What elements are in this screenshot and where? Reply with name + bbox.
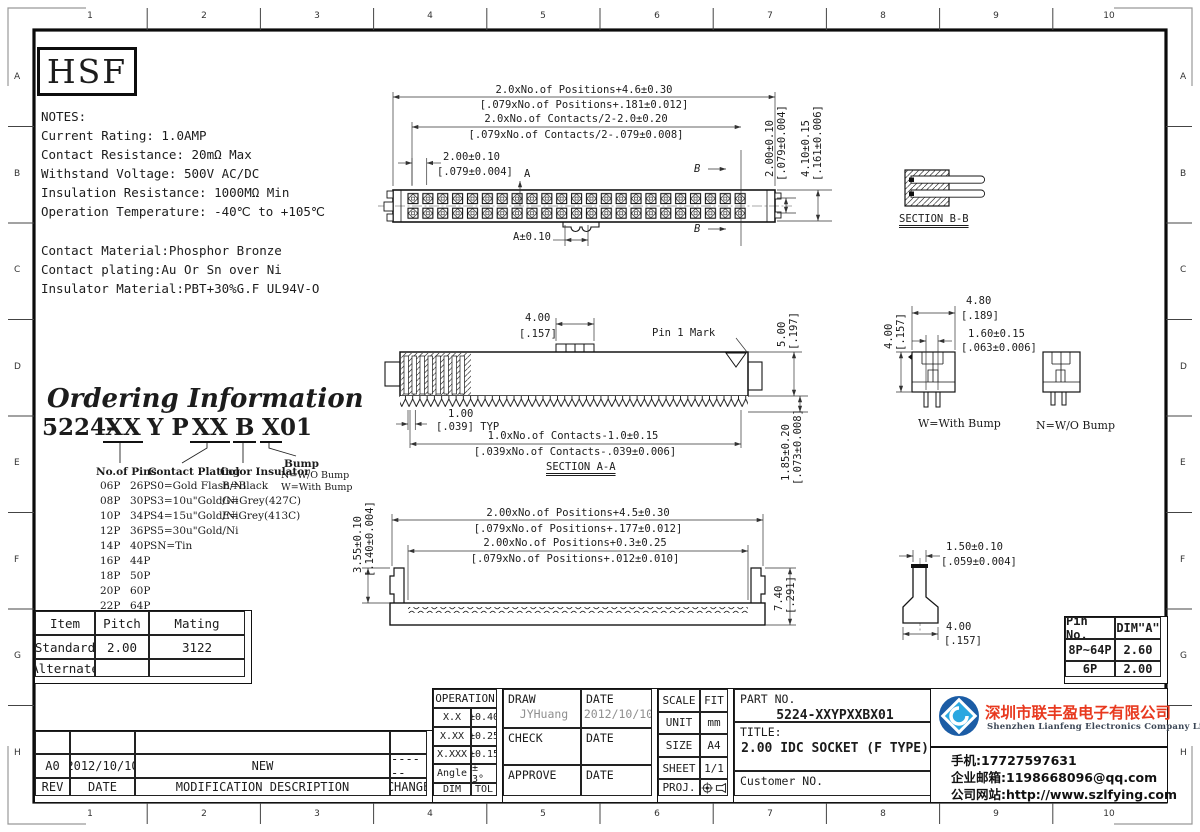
- dim-bottom-outer-in: [.079xNo.of Positions+.177±0.012]: [474, 523, 683, 536]
- ruler-col: 9: [993, 11, 999, 21]
- pin-table-cell: 6P: [1065, 661, 1115, 677]
- note-line: Contact plating:Au Or Sn over Ni: [41, 260, 282, 279]
- company-name-en: Shenzhen Lianfeng Electronics Company Li…: [987, 722, 1200, 732]
- pin-table-header: DIM"A": [1115, 617, 1161, 639]
- draw-date-value: 2012/10/10: [584, 706, 652, 721]
- pins-item: 14P: [100, 540, 120, 552]
- ruler-row: B: [1180, 169, 1186, 179]
- revision-table: A0 2012/10/10 NEW ------ REV DATE MODIFI…: [34, 730, 434, 803]
- dim-height-in: [.161±0.006]: [812, 105, 825, 181]
- tol-cell: X.XXX: [433, 746, 471, 765]
- dim-pin-top-mm: 1.50±0.10: [946, 541, 1003, 554]
- ruler-col: 5: [540, 11, 546, 21]
- ruler-col: 1: [87, 809, 93, 819]
- date-label: DATE: [586, 692, 614, 706]
- tol-cell: TOL: [471, 783, 497, 796]
- approval-block: DRAWJYHuang DATE2012/10/10 CHECK DATE AP…: [502, 688, 659, 803]
- info-block: SCALE FIT UNIT mm SIZE A4 SHEET 1/1 PROJ…: [657, 688, 735, 803]
- size-label: SIZE: [658, 734, 700, 757]
- ruler-col: 4: [427, 11, 433, 21]
- tolerance-table: OPERATION X.X ±0.40 X.XX ±0.25 X.XXX ±0.…: [432, 688, 504, 803]
- ruler-col: 3: [314, 11, 320, 21]
- pins-item: 18P: [100, 570, 120, 582]
- company-logo-icon: [937, 694, 983, 740]
- dim-aa-contacts-mm: 1.0xNo.of Contacts-1.0±0.15: [488, 430, 659, 443]
- hsf-logo-text: HSF: [47, 52, 127, 91]
- dim-pin-bottom-mm: 4.00: [946, 621, 971, 634]
- dim-pin-bottom-in: [.157]: [944, 635, 982, 648]
- proj-label: PROJ.: [658, 779, 700, 796]
- section-b-label-top: B: [694, 163, 700, 176]
- ruler-row: A: [1180, 72, 1186, 82]
- rev-cell: A0: [35, 754, 70, 778]
- check-label: CHECK: [508, 731, 543, 745]
- note-line: Withstand Voltage: 500V AC/DC: [41, 164, 259, 183]
- dim-bump-pin-in: [.063±0.006]: [961, 342, 1037, 355]
- rev-header: DATE: [70, 778, 135, 796]
- pins-item: 12P: [100, 525, 120, 537]
- ruler-col: 5: [540, 809, 546, 819]
- pins-item: 34P: [130, 510, 150, 522]
- mating-cell: 3122: [149, 635, 245, 659]
- ruler-col: 2: [201, 809, 207, 819]
- size-value: A4: [700, 734, 728, 757]
- note-line: Contact Resistance: 20mΩ Max: [41, 145, 252, 164]
- ordering-code-mid: Y P: [147, 414, 189, 441]
- dim-key-in: [.157]: [519, 328, 557, 341]
- draw-cell: DRAWJYHuang: [503, 689, 581, 728]
- dim-bump-height-mm: 4.00: [883, 324, 896, 349]
- dim-bottom-outer-mm: 2.00xNo.of Positions+4.5±0.30: [486, 507, 669, 520]
- ruler-row: F: [1180, 555, 1185, 565]
- mating-cell: 2.00: [95, 635, 149, 659]
- part-no-value: 5224-XXYPXXBX01: [776, 706, 893, 722]
- pin1-mark-label: Pin 1 Mark: [652, 327, 715, 340]
- dim-bottom-left-in: [.140±0.004]: [364, 501, 377, 577]
- ruler-col: 2: [201, 11, 207, 21]
- approve-date-cell: DATE: [581, 765, 652, 796]
- rev-header: REV: [35, 778, 70, 796]
- pin-table-cell: 8P~64P: [1065, 639, 1115, 661]
- tol-cell: DIM: [433, 783, 471, 796]
- rev-empty: [35, 731, 70, 754]
- ruler-row: C: [1180, 265, 1186, 275]
- ruler-row: E: [1180, 458, 1186, 468]
- pin-table-cell: 2.00: [1115, 661, 1161, 677]
- notes-heading: NOTES:: [41, 107, 86, 126]
- sheet-value: 1/1: [700, 757, 728, 780]
- ordering-title: Ordering Information: [47, 384, 364, 414]
- with-bump-label: W=With Bump: [918, 417, 1001, 430]
- dim-a-bottom: A±0.10: [513, 231, 551, 244]
- hsf-logo: HSF: [37, 47, 137, 96]
- section-aa-label: SECTION A-A: [546, 461, 616, 474]
- dim-positions-mm: 2.0xNo.of Positions+4.6±0.30: [495, 84, 672, 97]
- customer-label: Customer NO.: [740, 774, 823, 788]
- ordering-leader-lines: [120, 442, 296, 463]
- rev-empty: [135, 731, 390, 754]
- mating-header: Item: [35, 611, 95, 635]
- bump-item: W=With Bump: [281, 482, 353, 493]
- ordering-code-bump: X: [260, 414, 282, 443]
- pins-item: 36P: [130, 525, 150, 537]
- mating-cell: Alternate: [35, 659, 95, 677]
- dim-pitch-in: [.079±0.004]: [437, 166, 513, 179]
- rev-cell: 2012/10/10: [70, 754, 135, 778]
- mating-cell: Standard: [35, 635, 95, 659]
- color-item: E=Grey(413C): [222, 510, 300, 522]
- note-line: Current Rating: 1.0AMP: [41, 126, 207, 145]
- draw-label: DRAW: [508, 692, 536, 706]
- section-a-label-top: A: [524, 168, 530, 181]
- part-no-cell: PART NO.5224-XXYPXXBX01: [734, 689, 931, 722]
- ruler-row: G: [1180, 651, 1187, 661]
- rev-empty: [70, 731, 135, 754]
- ruler-col: 7: [767, 809, 773, 819]
- sheet-label: SHEET: [658, 757, 700, 780]
- unit-label: UNIT: [658, 712, 700, 735]
- rev-cell: NEW: [135, 754, 390, 778]
- pins-item: 16P: [100, 555, 120, 567]
- part-no-label: PART NO.: [740, 692, 795, 706]
- note-line: Insulator Material:PBT+30%G.F UL94V-O: [41, 279, 319, 298]
- dim-pitch-mm: 2.00±0.10: [443, 151, 500, 164]
- bump-item: N=W/O Bump: [281, 470, 349, 481]
- company-website: 公司网站:http://www.szlfying.com: [951, 784, 1177, 803]
- ruler-col: 7: [767, 11, 773, 21]
- mating-cell: [95, 659, 149, 677]
- mating-header: Pitch: [95, 611, 149, 635]
- tol-cell: ±0.40: [471, 708, 497, 727]
- dim-bump-height-in: [.157]: [895, 313, 908, 351]
- ruler-row: G: [14, 651, 21, 661]
- mating-cell: [149, 659, 245, 677]
- ruler-col: 9: [993, 809, 999, 819]
- ruler-row: C: [14, 265, 20, 275]
- dim-row-mm: 2.00±0.10: [764, 120, 777, 177]
- part-block: PART NO.5224-XXYPXXBX01 TITLE:2.00 IDC S…: [733, 688, 932, 803]
- ruler-col: 4: [427, 809, 433, 819]
- dim-contacts-in: [.079xNo.of Contacts/2-.079±0.008]: [469, 129, 684, 142]
- note-line: Contact Material:Phosphor Bronze: [41, 241, 282, 260]
- section-bb-label: SECTION B-B: [899, 213, 969, 226]
- tol-cell: X.X: [433, 708, 471, 727]
- dim-key-mm: 4.00: [525, 312, 550, 325]
- rev-header: MODIFICATION DESCRIPTION: [135, 778, 390, 796]
- date-label: DATE: [586, 731, 614, 745]
- pins-item: 60P: [130, 585, 150, 597]
- ordering-code-suffix: 01: [280, 414, 312, 441]
- date-label: DATE: [586, 768, 614, 782]
- color-item: B=Black: [222, 480, 268, 492]
- ruler-col: 3: [314, 809, 320, 819]
- check-date-cell: DATE: [581, 728, 652, 765]
- pins-item: 20P: [100, 585, 120, 597]
- note-line: Operation Temperature: -40℃ to +105℃: [41, 202, 325, 221]
- ruler-row: H: [14, 748, 21, 758]
- rev-header: CHANGE: [390, 778, 427, 796]
- ordering-code-plating: XX: [190, 414, 230, 443]
- customer-cell: Customer NO.: [734, 771, 931, 796]
- ruler-row: E: [14, 458, 20, 468]
- pin-table-cell: 2.60: [1115, 639, 1161, 661]
- draw-value: JYHuang: [520, 706, 568, 721]
- pin-detail-drawing: [899, 550, 940, 640]
- tol-cell: X.XX: [433, 727, 471, 746]
- rev-empty: [390, 731, 427, 754]
- ruler-col: 8: [880, 809, 886, 819]
- unit-value: mm: [700, 712, 728, 735]
- ruler-row: F: [14, 555, 19, 565]
- draw-date-cell: DATE2012/10/10: [581, 689, 652, 728]
- mating-header: Mating: [149, 611, 245, 635]
- third-angle-projection-icon: [701, 781, 727, 795]
- title-cell: TITLE:2.00 IDC SOCKET (F TYPE): [734, 722, 931, 771]
- dim-bottom-right-mm: 7.40: [773, 586, 786, 611]
- section-bb-drawing: [905, 170, 985, 206]
- scale-value: FIT: [700, 689, 728, 712]
- tol-cell: Angle: [433, 764, 471, 783]
- company-name-cn: 深圳市联丰盈电子有限公司: [985, 701, 1171, 723]
- ruler-row: A: [14, 72, 20, 82]
- mating-table: Item Pitch Mating Standard 2.00 3122 Alt…: [34, 610, 252, 684]
- dim-contacts-mm: 2.0xNo.of Contacts/2-2.0±0.20: [484, 113, 667, 126]
- tol-cell: ±0.15: [471, 746, 497, 765]
- pins-item: 44P: [130, 555, 150, 567]
- dim-tail-mm: 1.85±0.20: [780, 424, 793, 481]
- rev-cell: ------: [390, 754, 427, 778]
- check-cell: CHECK: [503, 728, 581, 765]
- approve-cell: APPROVE: [503, 765, 581, 796]
- ruler-row: B: [14, 169, 20, 179]
- scale-label: SCALE: [658, 689, 700, 712]
- ruler-row: H: [1180, 748, 1187, 758]
- pins-item: 10P: [100, 510, 120, 522]
- dim-tail-in: [.073±0.008]: [792, 409, 805, 485]
- tol-cell: ± 3°: [471, 764, 497, 783]
- ordering-code-pins: XX: [103, 414, 143, 443]
- company-header: 深圳市联丰盈电子有限公司 Shenzhen Lianfeng Electroni…: [931, 689, 1167, 748]
- drawing-sheet: 1 2 3 4 5 6 7 8 9 10 1 2 3 4 5 6 7 8 9 1…: [0, 0, 1200, 832]
- section-b-label-bottom: B: [694, 223, 700, 236]
- bump-header: Bump: [284, 458, 319, 470]
- dim-aa-height-mm: 5.00: [776, 322, 789, 347]
- dim-aa-contacts-in: [.039xNo.of Contacts-.039±0.006]: [474, 446, 676, 459]
- pins-item: 30P: [130, 495, 150, 507]
- ruler-col: 8: [880, 11, 886, 21]
- dim-aa-height-in: [.197]: [788, 312, 801, 350]
- dim-typ-mm: 1.00: [448, 408, 473, 421]
- pins-item: 50P: [130, 570, 150, 582]
- dim-pin-top-in: [.059±0.004]: [941, 556, 1017, 569]
- company-block: 深圳市联丰盈电子有限公司 Shenzhen Lianfeng Electroni…: [930, 688, 1168, 803]
- title-value: 2.00 IDC SOCKET (F TYPE): [741, 739, 929, 756]
- dim-bump-width-mm: 4.80: [966, 295, 991, 308]
- plating-item: SN=Tin: [150, 540, 192, 552]
- pins-item: 26P: [130, 480, 150, 492]
- pins-item: 06P: [100, 480, 120, 492]
- dim-height-mm: 4.10±0.15: [800, 120, 813, 177]
- dim-bottom-left-mm: 3.55±0.10: [352, 516, 365, 573]
- tol-cell: ±0.25: [471, 727, 497, 746]
- pin-table-header: Pin No.: [1065, 617, 1115, 639]
- pins-item: 40P: [130, 540, 150, 552]
- ordering-code-color: B: [233, 414, 256, 443]
- without-bump-label: N=W/O Bump: [1036, 419, 1115, 432]
- ruler-col: 10: [1103, 11, 1114, 21]
- dim-positions-in: [.079xNo.of Positions+.181±0.012]: [480, 99, 689, 112]
- ruler-col: 1: [87, 11, 93, 21]
- dim-bottom-right-in: [.291]: [785, 576, 798, 614]
- dim-bottom-inner-in: [.079xNo.of Positions+.012±0.010]: [471, 553, 680, 566]
- ruler-col: 10: [1103, 809, 1114, 819]
- dim-bottom-inner-mm: 2.00xNo.of Positions+0.3±0.25: [483, 537, 666, 550]
- dim-bump-pin-mm: 1.60±0.15: [968, 328, 1025, 341]
- pins-item: 08P: [100, 495, 120, 507]
- approve-label: APPROVE: [508, 768, 556, 782]
- ruler-col: 6: [654, 11, 660, 21]
- title-label: TITLE:: [740, 725, 782, 739]
- ruler-row: D: [1180, 362, 1187, 372]
- color-item: G=Grey(427C): [222, 495, 301, 507]
- proj-symbol-cell: [700, 779, 728, 796]
- pin-no-table: Pin No. DIM"A" 8P~64P 2.60 6P 2.00: [1064, 616, 1168, 684]
- ruler-col: 6: [654, 809, 660, 819]
- ruler-row: D: [14, 362, 21, 372]
- note-line: Insulation Resistance: 1000MΩ Min: [41, 183, 289, 202]
- tolerance-header: OPERATION: [433, 689, 497, 708]
- plating-item: S5=30u"Gold/Ni: [150, 525, 239, 537]
- dim-row-in: [.079±0.004]: [776, 105, 789, 181]
- dim-bump-width-in: [.189]: [961, 310, 999, 323]
